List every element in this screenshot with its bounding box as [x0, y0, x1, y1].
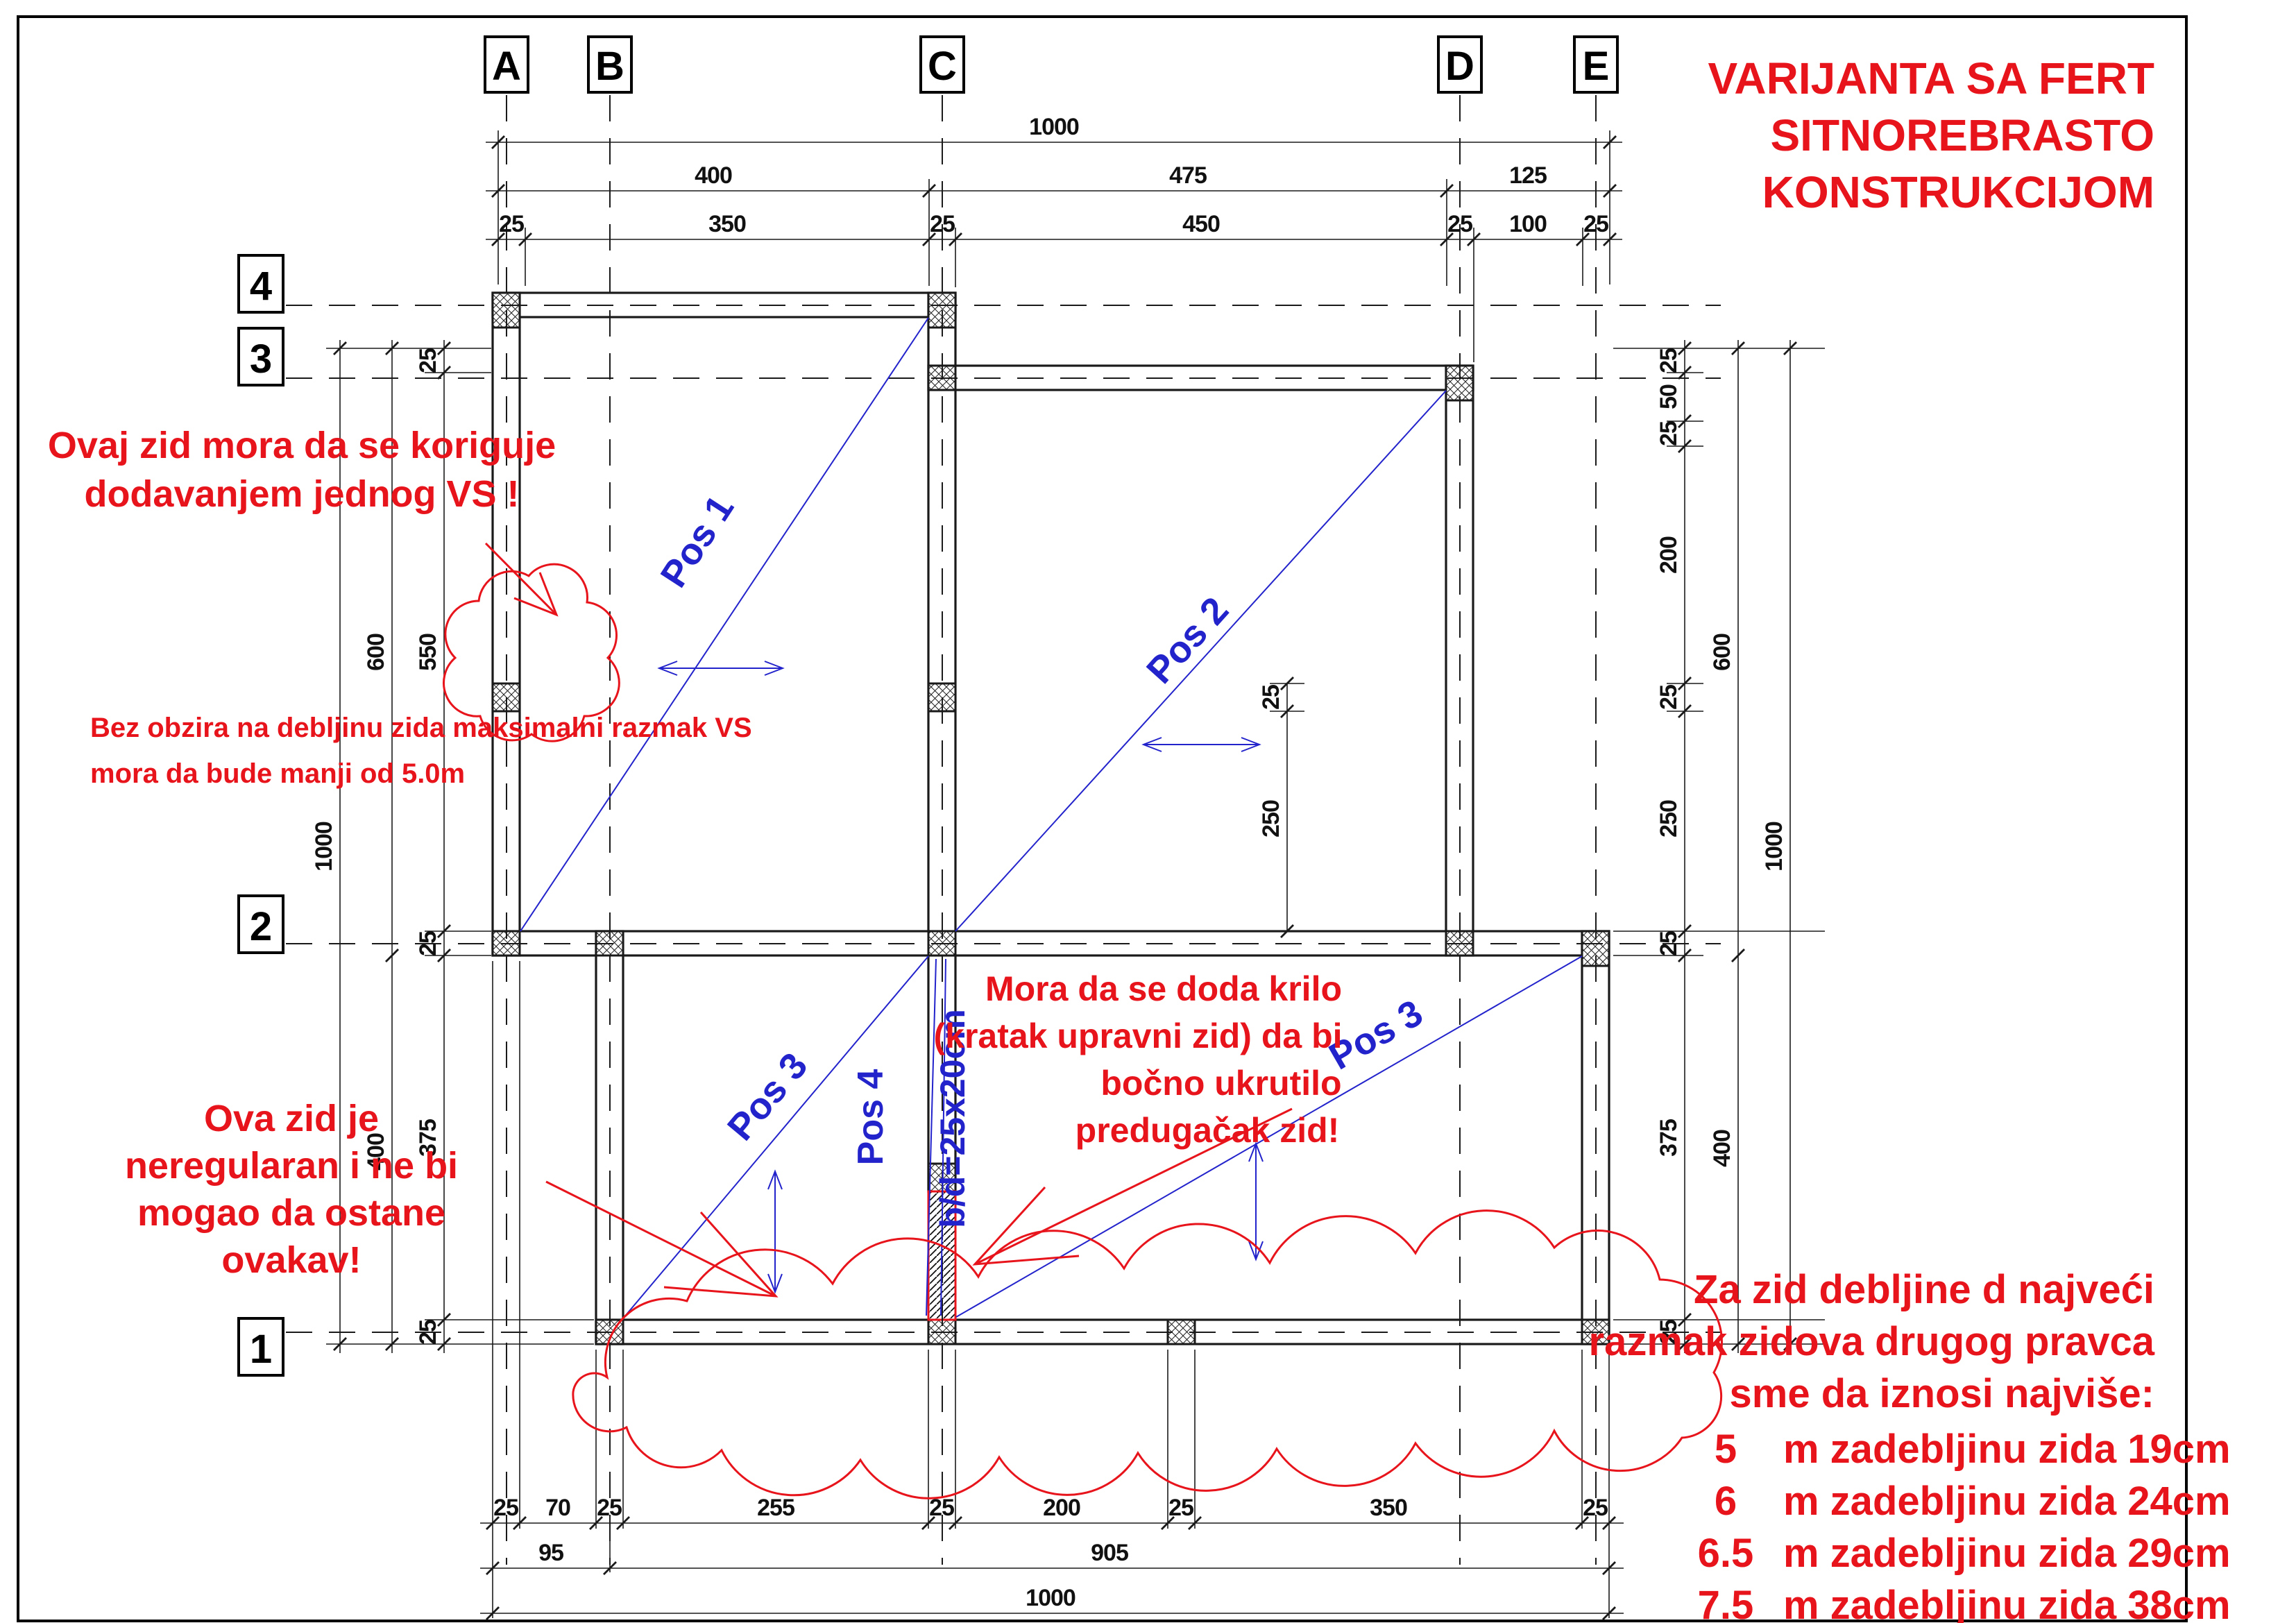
dim-top-total: 1000	[1029, 114, 1079, 140]
dim-bot-d8: 25	[1583, 1495, 1608, 1521]
axis-label-C: C	[928, 44, 957, 89]
rule-row2-t: m zadebljinu zida 24cm	[1783, 1479, 2231, 1524]
span-arrow-pos1	[659, 661, 783, 675]
note-krilo-line2: (kratak upravni zid) da bi	[933, 1017, 1342, 1055]
note-neregularan-line4: ovakav!	[221, 1239, 361, 1281]
dim-top-d5: 100	[1509, 211, 1547, 237]
dim-right-total: 1000	[1761, 822, 1787, 872]
note-koriguje-line1: Ovaj zid mora da se koriguje	[48, 425, 556, 466]
axis-label-4: 4	[250, 264, 272, 309]
axis-label-A: A	[492, 44, 521, 89]
axis-label-1: 1	[250, 1327, 272, 1372]
dim-bot-d3: 255	[757, 1495, 794, 1521]
wall-axis2	[493, 931, 1609, 955]
dim-right-d5: 250	[1656, 800, 1682, 838]
dim-right-d7: 375	[1656, 1119, 1682, 1157]
dim-bot-95: 95	[538, 1540, 563, 1566]
axis-label-B: B	[595, 44, 624, 89]
dim-right-d0: 25	[1656, 348, 1682, 373]
dim-right-d6: 25	[1656, 931, 1682, 956]
axis-label-E: E	[1583, 44, 1610, 89]
dim-left-total: 1000	[311, 822, 337, 872]
dim-interior-25: 25	[1258, 685, 1284, 710]
dim-left-d0: 25	[415, 348, 441, 373]
note-neregularan-line2: neregularan i ne bi	[125, 1145, 458, 1187]
note-krilo-line4: predugačak zid!	[1075, 1111, 1340, 1150]
dim-top-d3: 450	[1182, 211, 1220, 237]
note-bezobzira-line2: mora da bude manji od 5.0m	[90, 758, 465, 789]
dim-bot-total: 1000	[1026, 1585, 1075, 1611]
rule-row1-n: 5	[1715, 1427, 1737, 1472]
rule-line3: sme da iznosi najviše:	[1730, 1371, 2154, 1416]
dim-right-d2: 25	[1656, 421, 1682, 446]
dim-right-600: 600	[1709, 634, 1735, 671]
arrow-neregularan	[546, 1182, 776, 1296]
rule-row3-t: m zadebljinu zida 29cm	[1783, 1531, 2231, 1576]
dim-bot-d0: 25	[493, 1495, 518, 1521]
pos1-diagonal	[520, 318, 928, 931]
note-neregularan-line3: mogao da ostane	[137, 1192, 445, 1234]
dim-right-d1: 50	[1656, 384, 1682, 409]
note-krilo-line1: Mora da se doda krilo	[985, 969, 1342, 1008]
dim-right-d3: 200	[1656, 536, 1682, 574]
dim-left-d2: 25	[415, 931, 441, 956]
pos3-left-label: Pos 3	[720, 1045, 816, 1148]
dim-interior-250: 250	[1258, 800, 1284, 838]
span-arrow-pos2	[1143, 738, 1259, 751]
dim-top-400: 400	[695, 162, 732, 189]
dim-right-d4: 25	[1656, 685, 1682, 710]
rule-line2: razmak zidova drugog pravca	[1589, 1319, 2155, 1364]
dim-left-600: 600	[363, 634, 389, 671]
dim-bot-d5: 200	[1043, 1495, 1080, 1521]
pos2-diagonal	[955, 391, 1446, 931]
dim-top-d6: 25	[1583, 211, 1608, 237]
rule-row4-n: 7.5	[1698, 1583, 1754, 1623]
axis-label-D: D	[1445, 44, 1474, 89]
pos4-label: Pos 4	[851, 1069, 891, 1166]
axis-label-3: 3	[250, 337, 272, 382]
dim-bot-d7: 350	[1370, 1495, 1407, 1521]
dim-top-d4: 25	[1447, 211, 1472, 237]
dim-bot-905: 905	[1091, 1540, 1128, 1566]
dimension-interior: 25 250	[1258, 677, 1304, 937]
title-line2: SITNOREBRASTO	[1770, 110, 2154, 160]
vertical-serclage-columns	[493, 293, 1609, 1344]
rule-row3-n: 6.5	[1698, 1531, 1754, 1576]
rule-line1: Za zid debljine d najveći	[1694, 1267, 2154, 1312]
dim-top-125: 125	[1509, 162, 1547, 189]
dim-top-d0: 25	[499, 211, 524, 237]
pos1-label: Pos 1	[653, 488, 742, 595]
title-line3: KONSTRUKCIJOM	[1762, 167, 2154, 217]
dimensions-right: 1000 600 400 25 50 25 200 25 250 25 375 …	[1613, 340, 1825, 1353]
rule-row4-t: m zadebljinu zida 38cm	[1783, 1583, 2231, 1623]
note-neregularan-line1: Ova zid je	[204, 1098, 379, 1139]
red-markup: Ovaj zid mora da se koriguje dodavanjem …	[48, 53, 2231, 1623]
axis-label-2: 2	[250, 904, 272, 949]
note-krilo-line3: bočno ukrutilo	[1100, 1064, 1341, 1103]
dim-bot-d2: 25	[597, 1495, 622, 1521]
dimensions-top: 1000 400 475 125 25 350 25 450 25 100 25	[486, 114, 1622, 362]
floor-plan-sheet: A B C D E 4 3 2 1 1000 400 475	[0, 0, 2296, 1623]
dim-top-d1: 350	[708, 211, 746, 237]
dim-top-475: 475	[1169, 162, 1207, 189]
title-line1: VARIJANTA SA FERT	[1708, 53, 2154, 103]
dim-right-400: 400	[1709, 1130, 1735, 1167]
revision-cloud-bottom	[573, 1211, 1722, 1499]
note-koriguje-line2: dodavanjem jednog VS !	[84, 473, 519, 515]
span-arrow-pos3-left	[768, 1171, 782, 1292]
dim-top-d2: 25	[930, 211, 955, 237]
rule-row1-t: m zadebljinu zida 19cm	[1783, 1427, 2231, 1472]
dim-left-d1: 550	[415, 634, 441, 671]
rule-row2-n: 6	[1715, 1479, 1737, 1524]
dim-bot-d6: 25	[1168, 1495, 1193, 1521]
walls	[493, 293, 1609, 1344]
dim-left-d4: 25	[415, 1320, 441, 1345]
dimensions-bottom: 25 70 25 255 25 200 25 350 25 95 905 100…	[480, 961, 1624, 1620]
note-bezobzira-line1: Bez obzira na debljinu zida maksimalni r…	[90, 713, 752, 743]
dim-bot-d1: 70	[545, 1495, 570, 1521]
slab-annotations: Pos 1 Pos 2 Pos 3 Pos 3 Pos 4 b/d=25x20c…	[520, 318, 1582, 1318]
